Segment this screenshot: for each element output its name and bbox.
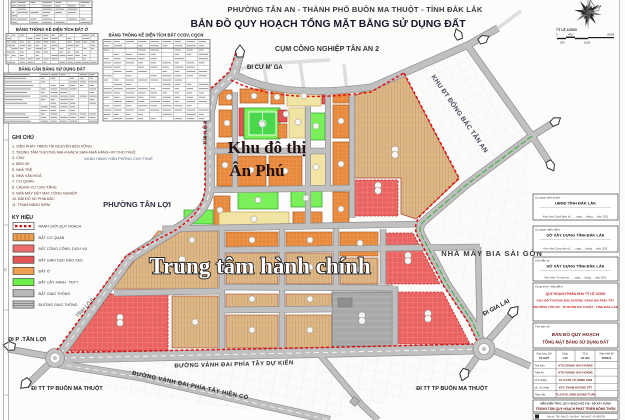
svg-text:5. NHÀ TRẺ: 5. NHÀ TRẺ	[12, 167, 33, 172]
svg-text:ĐẤT CƠ QUAN: ĐẤT CƠ QUAN	[39, 236, 65, 240]
svg-text:QL. Kỹ thuật: QL. Kỹ thuật	[535, 385, 550, 389]
svg-text:ĐI P .TÂN LỢI: ĐI P .TÂN LỢI	[8, 336, 46, 343]
svg-text:TỔNG MẶT BẰNG SỬ DỤNG ĐẤT: TỔNG MẶT BẰNG SỬ DỤNG ĐẤT	[542, 340, 609, 345]
svg-text:TRUNG TÂM QUY HOẠCH PHÁT TRIỂN: TRUNG TÂM QUY HOẠCH PHÁT TRIỂN NÔNG THÔN	[536, 406, 617, 411]
svg-text:PHƯỜNG TÂN LỢI: PHƯỜNG TÂN LỢI	[103, 200, 171, 209]
svg-text:UBND TỈNH ĐẮK LẮK: UBND TỈNH ĐẮK LẮK	[555, 201, 596, 206]
svg-text:KTS HOÀNG HUY HOÀNG: KTS HOÀNG HUY HOÀNG	[558, 370, 593, 375]
svg-text:ĐƯỜNG GIAO THÔNG: ĐƯỜNG GIAO THÔNG	[39, 302, 78, 307]
svg-text:11. TRẠM ĐĂNG KIỂM: 11. TRẠM ĐĂNG KIỂM	[12, 202, 50, 207]
svg-text:TỈNH LỘ 8: TỈNH LỘ 8	[202, 121, 209, 145]
svg-text:6. NHÀ VĂN HOÁ: 6. NHÀ VĂN HOÁ	[12, 174, 42, 178]
svg-text:Chủ đầu tư:: Chủ đầu tư:	[535, 259, 550, 263]
svg-text:8. CHUNG CƯ CAO TẦNG: 8. CHUNG CƯ CAO TẦNG	[12, 185, 57, 189]
svg-text:KHU ĐÔ THỊ PHÍA BẮC ĐƯỜNG VÀNH: KHU ĐÔ THỊ PHÍA BẮC ĐƯỜNG VÀNH ĐAI PHÍA …	[537, 298, 616, 303]
svg-text:Địa chỉ: 789 - Đại Cồ - Ba Đìn: Địa chỉ: 789 - Đại Cồ - Ba Đình - Hà Nội…	[547, 416, 605, 419]
svg-text:ĐẤT GIAO THÔNG: ĐẤT GIAO THÔNG	[39, 291, 71, 296]
svg-text:Tỷ lệ: Tỷ lệ	[582, 353, 588, 356]
svg-text:Giám đốc: Giám đốc	[535, 393, 547, 397]
svg-text:ĐẤT GIÁO DỤC ĐÀO TẠO: ĐẤT GIÁO DỤC ĐÀO TẠO	[39, 258, 83, 262]
svg-text:TỶ LỆ 1/2000: TỶ LỆ 1/2000	[556, 27, 577, 32]
svg-text:Kèm theo Công văn số .......ng: Kèm theo Công văn số .......ngày......th…	[543, 247, 608, 251]
svg-text:ĐẤT CÂY XANH - TDTT: ĐẤT CÂY XANH - TDTT	[39, 280, 79, 285]
svg-text:KTS HOÀNG HUY HOÀNG: KTS HOÀNG HUY HOÀNG	[558, 362, 593, 367]
svg-text:200M: 200M	[607, 33, 615, 37]
svg-text:BẢNG THỐNG KÊ DIỆN TÍCH ĐẤT CC: BẢNG THỐNG KÊ DIỆN TÍCH ĐẤT CCDV, CQCN	[109, 33, 204, 38]
svg-text:GHI CHÚ: GHI CHÚ	[12, 134, 34, 141]
svg-text:3. CHỢ: 3. CHỢ	[12, 156, 25, 160]
svg-text:70: 70	[4, 268, 8, 272]
svg-text:ĐI CƯ M' GA: ĐI CƯ M' GA	[247, 65, 283, 71]
svg-text:Th.S KTS VŨ HỒNG SƠN: Th.S KTS VŨ HỒNG SƠN	[559, 377, 592, 382]
svg-text:Ân Phú: Ân Phú	[229, 161, 284, 180]
svg-text:SỞ XÂY DỰNG TỈNH ĐẮK LẮK: SỞ XÂY DỰNG TỈNH ĐẮK LẮK	[546, 264, 604, 269]
svg-text:1:40: 1:40	[562, 356, 568, 360]
svg-text:4. BẾN XE: 4. BẾN XE	[12, 161, 30, 166]
svg-text:KÝ HIỆU: KÝ HIỆU	[12, 213, 33, 221]
svg-text:SỞ XÂY DỰNG TỈNH ĐẮK LẮK: SỞ XÂY DỰNG TỈNH ĐẮK LẮK	[546, 233, 604, 238]
svg-text:9. NHÀ MÁY DỆT MAY CÔNG NGHIỆ: 9. NHÀ MÁY DỆT MAY CÔNG NGHIỆP	[12, 190, 78, 195]
svg-text:QUY HOẠCH PHÂN KHU TỶ LỆ 1/200: QUY HOẠCH PHÂN KHU TỶ LỆ 1/2000	[546, 291, 606, 296]
svg-text:Thiết kế: Thiết kế	[535, 371, 545, 375]
svg-text:1. VIỆN PHÁT TRIỂN TÀI NGUYÊN: 1. VIỆN PHÁT TRIỂN TÀI NGUYÊN BỀN VỮNG	[12, 144, 92, 149]
svg-text:2. TRUNG TÂM THƯƠNG MẠI+KHÁCH: 2. TRUNG TÂM THƯƠNG MẠI+KHÁCH SẠN+NHÀ HÀ…	[12, 149, 136, 154]
svg-text:ĐI TT TP BUÔN MA THUỘT: ĐI TT TP BUÔN MA THUỘT	[31, 384, 103, 392]
svg-text:CỤM CÔNG NGHIỆP TÂN AN 2: CỤM CÔNG NGHIỆP TÂN AN 2	[275, 44, 379, 53]
svg-text:BẢN ĐỒ QUY HOẠCH TỔNG MẶT BẰNG: BẢN ĐỒ QUY HOẠCH TỔNG MẶT BẰNG SỬ DỤNG Đ…	[190, 17, 466, 30]
svg-text:PHƯỜNG TÂN AN - THÀNH PHỐ BUÔN: PHƯỜNG TÂN AN - THÀNH PHỐ BUÔN MA THUỘT …	[227, 4, 482, 14]
svg-text:Th.S KTS. ĐÀM QUANG TUẤN: Th.S KTS. ĐÀM QUANG TUẤN	[555, 392, 595, 397]
svg-text:PHƯỜNG TÂN AN - TP BUÔN MA THU: PHƯỜNG TÂN AN - TP BUÔN MA THUỘT - TỈNH …	[533, 304, 619, 309]
svg-text:Tên bản vẽ:: Tên bản vẽ:	[535, 325, 550, 329]
svg-text:Cơ quan phê duyệt:: Cơ quan phê duyệt:	[535, 196, 561, 200]
svg-text:Chập: Chập	[562, 353, 569, 356]
svg-text:KTS. PHẠM DƯƠNG YẾT: KTS. PHẠM DƯƠNG YẾT	[559, 384, 593, 389]
svg-text:NGÂN HÀNG+VĂN PHÒNG CHO THUÊ: NGÂN HÀNG+VĂN PHÒNG CHO THUÊ	[84, 156, 153, 161]
svg-text:Giai đoạn QH: Giai đoạn QH	[536, 353, 551, 356]
svg-text:Năm thiết kế: Năm thiết kế	[599, 353, 614, 356]
svg-text:Kèm theo Tờ trình số .......ng: Kèm theo Tờ trình số .......ngày......th…	[544, 276, 607, 280]
svg-text:Kèm theo Quyết định số .......: Kèm theo Quyết định số .......ngày......…	[543, 215, 609, 219]
svg-text:ĐẤT Ở: ĐẤT Ở	[39, 269, 51, 274]
svg-text:08/2011: 08/2011	[602, 356, 612, 360]
svg-text:RANH GIỚI QUY HOẠCH: RANH GIỚI QUY HOẠCH	[39, 224, 82, 229]
svg-text:Khu đô thị: Khu đô thị	[228, 138, 307, 157]
svg-text:Chủ nhiệm: Chủ nhiệm	[535, 378, 548, 382]
svg-text:ĐẤT CÔNG CỘNG, DỊCH VỤ: ĐẤT CÔNG CỘNG, DỊCH VỤ	[39, 246, 88, 251]
svg-text:400: 400	[568, 33, 573, 37]
svg-text:Thể hiện: Thể hiện	[535, 363, 546, 367]
svg-text:1/2.000: 1/2.000	[581, 356, 590, 360]
svg-text:ĐI TT TP BUÔN MA THUỘT: ĐI TT TP BUÔN MA THUỘT	[416, 384, 488, 392]
svg-text:1000: 1000	[584, 41, 591, 45]
svg-text:BẢNG CÂN BẰNG SỬ DỤNG ĐẤT: BẢNG CÂN BẰNG SỬ DỤNG ĐẤT	[19, 67, 86, 72]
svg-text:7. CƠ QUAN: 7. CƠ QUAN	[12, 180, 34, 184]
svg-text:NHÀ MÁY BIA SÀI GÒN: NHÀ MÁY BIA SÀI GÒN	[441, 249, 542, 258]
svg-text:200: 200	[560, 41, 565, 45]
svg-text:Công trình - Địa điểm:: Công trình - Địa điểm:	[535, 285, 563, 289]
svg-text:Cơ quan thẩm định:: Cơ quan thẩm định:	[535, 228, 561, 232]
svg-text:BẢNG THỐNG KÊ DIỆN TÍCH ĐẤT Ở: BẢNG THỐNG KÊ DIỆN TÍCH ĐẤT Ở	[16, 27, 89, 32]
svg-text:Trung tâm hành chính: Trung tâm hành chính	[149, 254, 371, 279]
svg-text:10. BÃI ĐỖ XE PHÍA BẮC: 10. BÃI ĐỖ XE PHÍA BẮC	[12, 196, 55, 201]
svg-text:BẢN ĐỒ QUY HOẠCH: BẢN ĐỒ QUY HOẠCH	[552, 331, 600, 337]
